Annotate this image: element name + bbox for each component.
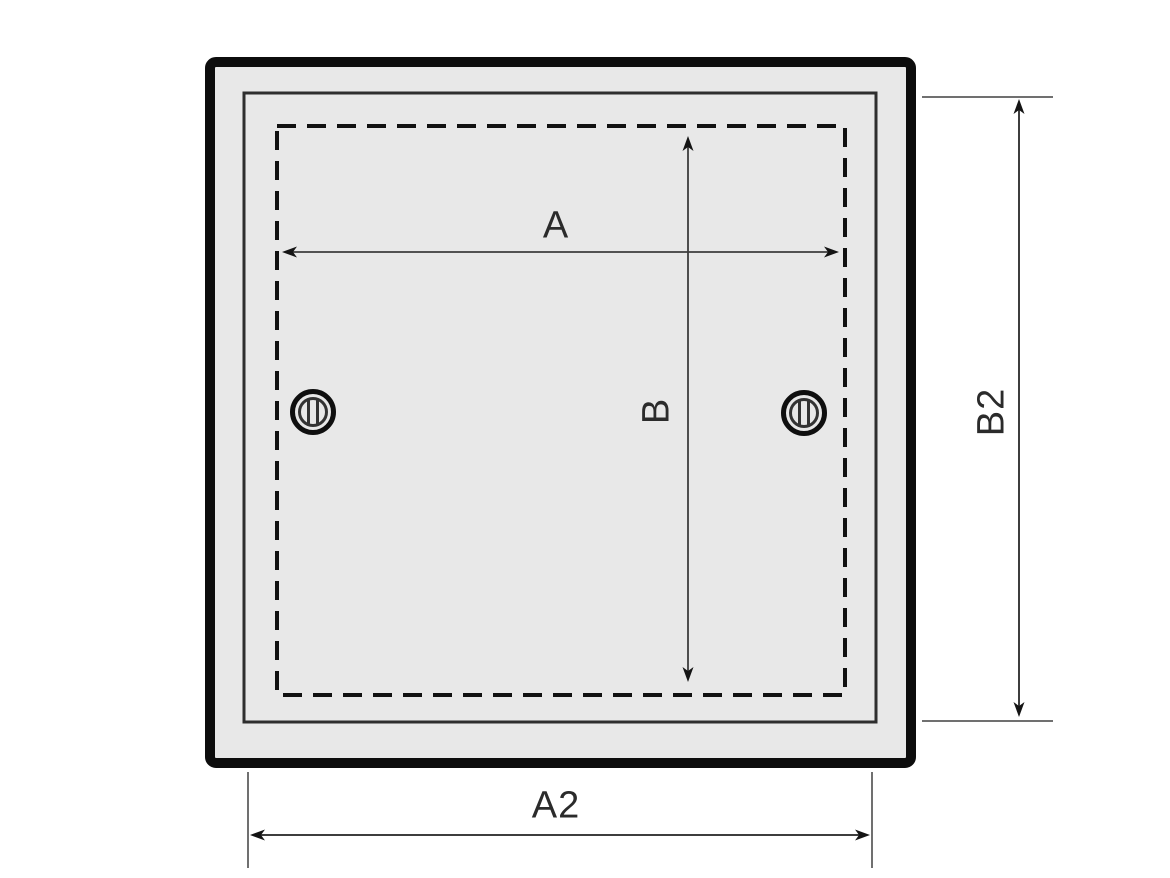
dim-a2-label: A2: [532, 785, 580, 828]
drawing-layer: [0, 0, 1170, 878]
dim-b-label: B: [636, 398, 679, 424]
screw-icon: [784, 393, 825, 434]
dim-b2-label: B2: [971, 388, 1014, 436]
dimension-drawing: A B A2 B2: [0, 0, 1170, 878]
dim-a-label: A: [543, 205, 569, 248]
screw-icon: [293, 392, 334, 433]
